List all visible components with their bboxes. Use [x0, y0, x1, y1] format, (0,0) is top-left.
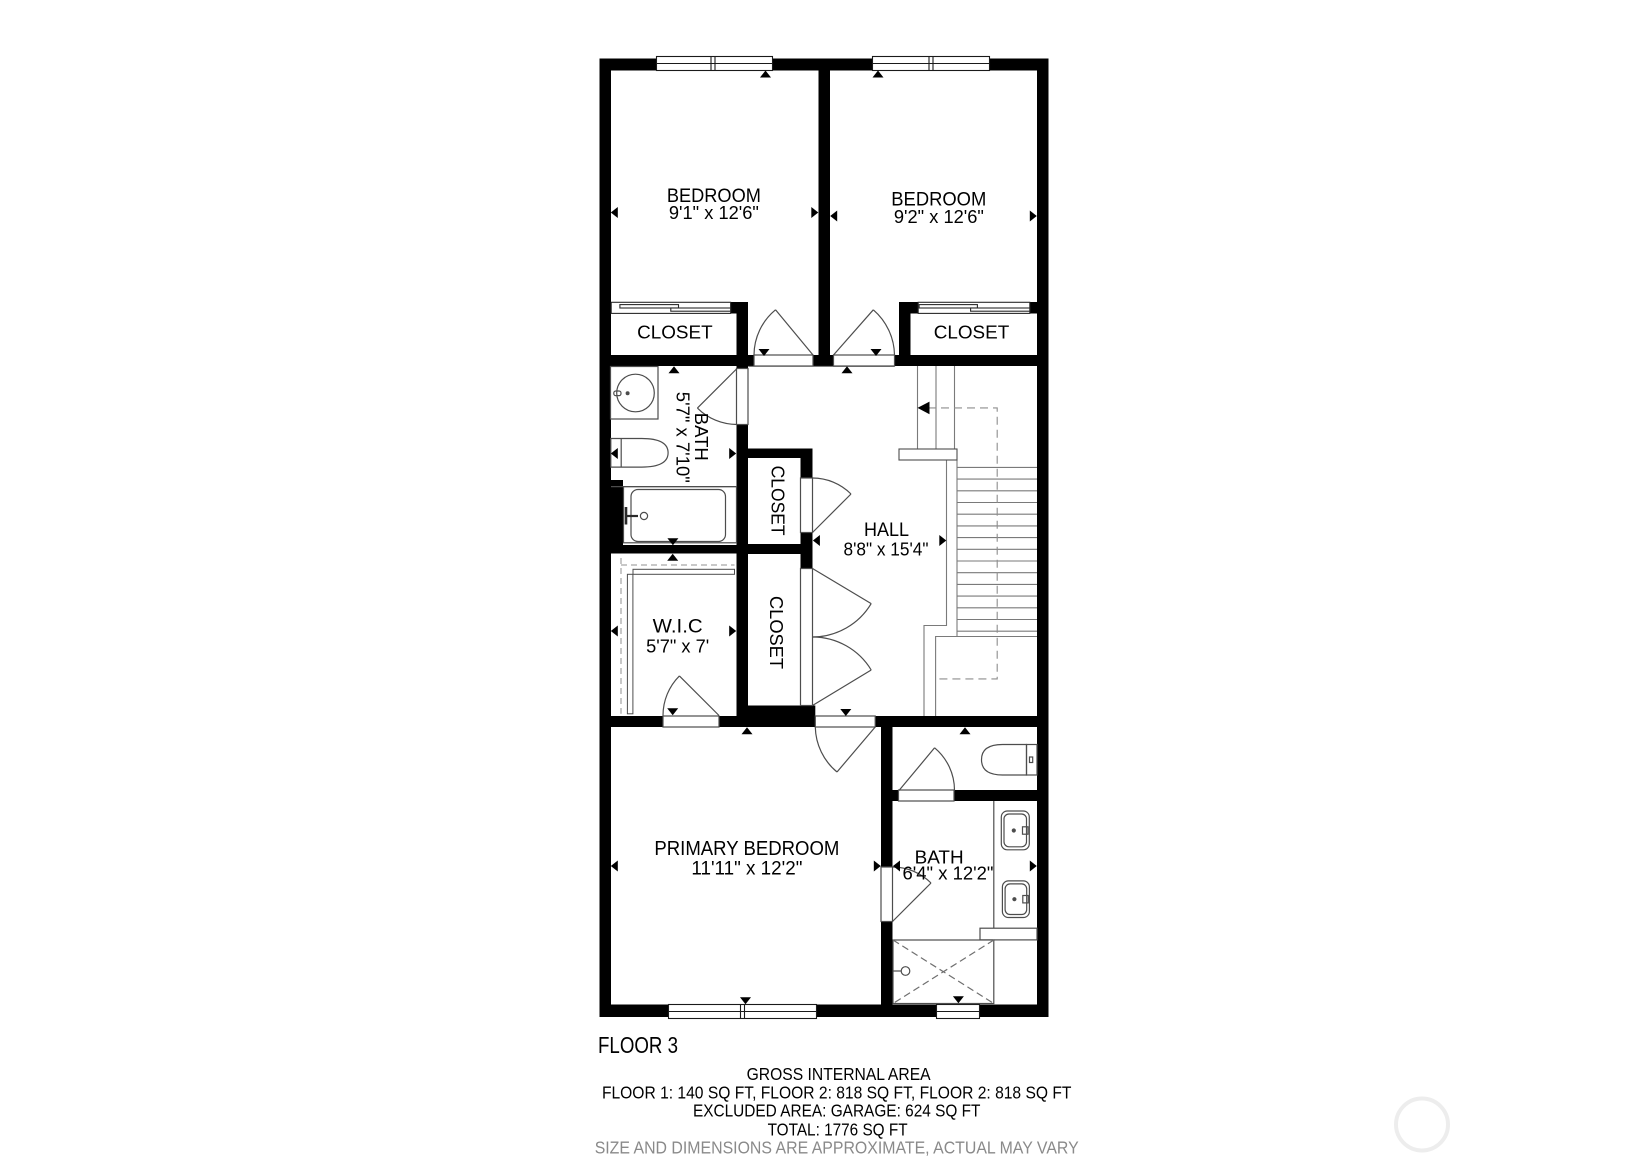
svg-text:5'7" x 7': 5'7" x 7': [646, 637, 709, 657]
svg-text:9'2" x 12'6": 9'2" x 12'6": [894, 207, 984, 227]
svg-text:FLOOR 3: FLOOR 3: [598, 1032, 678, 1058]
svg-text:5'7" x 7'10": 5'7" x 7'10": [673, 392, 693, 483]
svg-text:GROSS INTERNAL AREA: GROSS INTERNAL AREA: [747, 1064, 931, 1084]
svg-text:TOTAL: 1776 SQ FT: TOTAL: 1776 SQ FT: [768, 1120, 908, 1140]
svg-text:BATH: BATH: [691, 413, 712, 461]
svg-text:CLOSET: CLOSET: [767, 466, 787, 536]
svg-text:HALL: HALL: [864, 520, 909, 541]
svg-text:PRIMARY BEDROOM: PRIMARY BEDROOM: [654, 838, 839, 860]
svg-text:EXCLUDED AREA: GARAGE: 624 SQ: EXCLUDED AREA: GARAGE: 624 SQ FT: [693, 1101, 981, 1121]
svg-text:FLOOR 1: 140 SQ FT, FLOOR 2: 8: FLOOR 1: 140 SQ FT, FLOOR 2: 818 SQ FT, …: [602, 1082, 1072, 1102]
svg-text:9'1" x 12'6": 9'1" x 12'6": [669, 203, 759, 223]
svg-text:CLOSET: CLOSET: [934, 323, 1010, 343]
svg-text:6'4" x 12'2": 6'4" x 12'2": [903, 864, 994, 884]
svg-text:11'11" x 12'2": 11'11" x 12'2": [691, 859, 802, 880]
svg-text:W.I.C: W.I.C: [653, 617, 703, 638]
svg-text:CLOSET: CLOSET: [766, 596, 786, 669]
svg-text:SIZE AND DIMENSIONS ARE APPROX: SIZE AND DIMENSIONS ARE APPROXIMATE, ACT…: [595, 1138, 1079, 1158]
svg-text:8'8" x 15'4": 8'8" x 15'4": [844, 540, 929, 560]
svg-text:CLOSET: CLOSET: [637, 323, 713, 343]
